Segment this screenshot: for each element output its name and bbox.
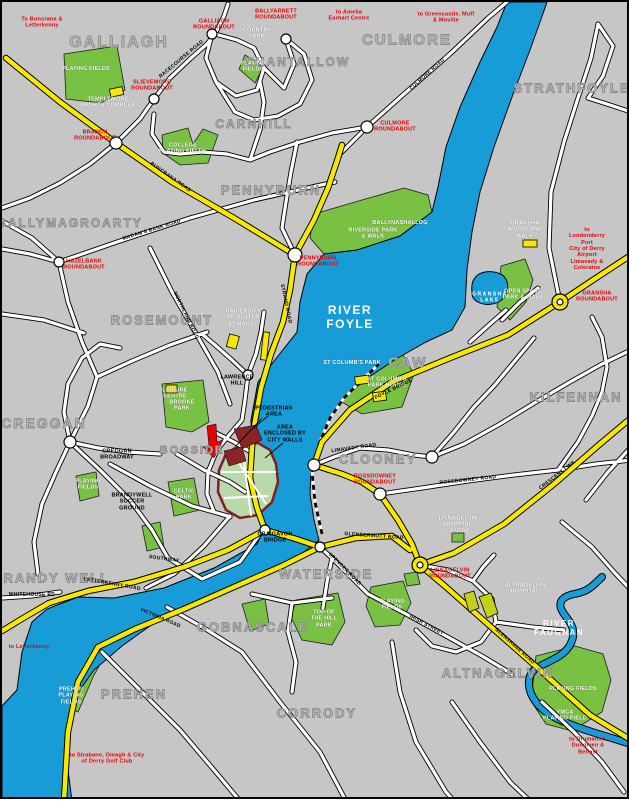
park-label-top-of-the-hill-park: TOP OF THE HILL PARK — [311, 610, 337, 629]
poi-label-gransha-woodland-walk: GRANSHA WOODLAND WALK — [508, 221, 543, 240]
poi-label-university-of-ulster: UNIVERSITY OF ULSTER AT MAGEE — [225, 309, 260, 328]
road-label-foyle-bridge: FOYLE BRIDGE — [374, 378, 413, 401]
park-label-waterside-playing-fields: PLAYING FIELDS — [379, 599, 404, 612]
direction-label-strabane: to Strabane, Omagh & City of Derry Golf … — [70, 753, 145, 766]
park-label-kilfennan-playing-fields: PLAYING FIELDS — [549, 686, 597, 692]
park-label-celtic-park: CELTIC PARK — [174, 489, 195, 502]
district-culmore: CULMORE — [362, 33, 452, 48]
direction-label-greencastle: to Greencastle, Muff & Moville — [418, 12, 475, 25]
road-label-madams-bank-road: MADAM'S BANK ROAD — [122, 219, 182, 242]
district-creggan: CREGGAN — [1, 416, 87, 430]
district-galliagh: GALLIAGH — [69, 35, 169, 51]
park-label-brooke-park: BROOKE PARK — [169, 400, 194, 413]
roundabout-label-galliagh: GALLIAGH ROUNDABOUT — [193, 19, 235, 32]
note-label-city-walls: AREA ENCLOSED BY CITY WALLS — [264, 425, 306, 444]
direction-label-londonderry-port: to Londonderry Port City of Derry Airpor… — [567, 227, 607, 271]
road-label-buncrana-road: BUNCRANA ROAD — [148, 162, 191, 195]
road-label-spencer-road: SPENCER ROAD — [326, 552, 361, 587]
district-clooney: CLOONEY — [339, 453, 417, 466]
roundabout-label-rossdowney: ROSSDOWNEY ROUNDABOUT — [354, 474, 396, 487]
district-altnagelvin: ALTNAGELVIN — [442, 667, 555, 680]
district-caw: CAW — [389, 355, 428, 369]
map: GALLIAGHSHANTALLOWCULMORESTRATHFOYLECARN… — [0, 0, 629, 799]
district-prehen: PREHEN — [101, 688, 167, 701]
direction-label-drumahoe: to Drumahoe, Dungiven & Belfast — [569, 737, 608, 756]
park-label-college-playing-fields: COLLEGE PLAYING FIELDS — [159, 143, 207, 156]
district-waterside: WATERSIDE — [279, 568, 373, 581]
road-label-glendermott-road: GLENDERMOTT ROAD — [344, 532, 404, 542]
park-label-ballyarnett-playing-fields: PLAYING FIELDS — [240, 61, 265, 74]
poi-label-lawrence-hill: LAWRENCE HILL — [220, 375, 253, 388]
park-label-prehen-playing-fields: PREHEN PLAYING FIELDS — [58, 687, 83, 706]
district-rosemount: ROSEMOUNT — [111, 314, 214, 327]
roundabout-label-gransha: GRANSHA ROUNDABOUT — [576, 291, 618, 304]
district-strathfoyle: STRATHFOYLE — [513, 82, 629, 95]
water-label-river-foyle: RIVER FOYLE — [326, 304, 374, 332]
roundabout-label-pennyburn: PENNYBURN ROUNDABOUT — [297, 256, 339, 269]
district-shantallow: SHANTALLOW — [246, 56, 350, 68]
park-label-st-columbs-park: ST COLUMB'S PARK — [323, 360, 381, 366]
poi-label-lisnagelvin-shopping-centre: LISNAGELVIN SHOPPING CENTRE — [439, 516, 478, 535]
note-label-pedestrian-area: PEDESTRIAN AREA — [255, 406, 292, 419]
roundabout-label-lisnagelvin: LISNAGELVIN ROUNDABOUT — [429, 568, 471, 581]
road-label-limavady-road: LIMAVADY ROAD — [331, 443, 377, 455]
direction-label-buncrana: To Buncrana & Letterkenny — [21, 17, 62, 30]
poi-label-brandywell-soccer-ground: BRANDYWELL SOCCER GROUND — [111, 493, 152, 512]
poi-label-altnagelvin-hospital: ALTNAGELVIN HOSPITAL — [505, 583, 546, 596]
water-label-river-faughan: RIVER FAUGHAN — [534, 619, 584, 637]
district-bogside: BOGSIDE — [160, 446, 225, 457]
district-pennyburn: PENNYBURN — [221, 184, 321, 197]
district-ballymagroarty: BALLYMAGROARTY — [0, 217, 143, 229]
label-layer: GALLIAGHSHANTALLOWCULMORESTRATHFOYLECARN… — [2, 2, 627, 797]
poi-label-creggan-broadway: CREGGAN BROADWAY — [100, 449, 134, 462]
road-label-whitehouse-road: WHITEHOUSE RD — [9, 593, 55, 599]
district-gobnascale: GOBNASCALE — [197, 621, 309, 634]
roundabout-label-ballyarnett: BALLYARNETT ROUNDABOUT — [255, 9, 297, 22]
district-carnhill: CARNHILL — [215, 118, 292, 130]
roundabout-label-hazelbank: HAZELBANK ROUNDABOUT — [63, 259, 105, 272]
road-label-southway: SOUTHWAY — [148, 555, 179, 565]
poi-label-templemore-sports-complex: TEMPLEMORE SPORTS COMPLEX — [81, 97, 135, 110]
road-label-letterkenny-road: LETTERKENNY ROAD — [83, 577, 141, 593]
district-corrody: CORRODY — [277, 707, 357, 720]
roundabout-label-culmore: CULMORE ROUNDABOUT — [374, 121, 416, 134]
road-label-northland-road: NORTHLAND ROAD — [171, 291, 199, 340]
direction-label-amelia-earhart: to Amelia Earhart Centre — [328, 10, 369, 23]
roundabout-label-branch: BRANCH ROUNDABOUT — [74, 130, 116, 143]
road-label-racecourse-road: RACECOURSE ROAD — [159, 40, 206, 81]
road-label-rossdowney-road: ROSSDOWNEY ROAD — [439, 475, 496, 487]
park-label-riverside-park: RIVERSIDE PARK & WALK — [348, 228, 397, 241]
water-label-gransha-lake: GRANSHA LAKE — [472, 292, 508, 304]
district-kilfennan: KILFENNAN — [529, 391, 622, 404]
road-label-irish-street: IRISH STREET — [408, 615, 444, 638]
poi-label-craigavon-bridge: CRAIGAVON BRIDGE — [257, 532, 292, 545]
road-label-culmore-road: CULMORE ROAD — [409, 58, 446, 92]
road-label-strand-road: STRAND ROAD — [278, 284, 292, 325]
poi-label-leisure-centre: LEISURE CENTRE — [162, 388, 187, 401]
park-label-open-space-park-walk: OPEN SPACE PARK & WALK — [503, 289, 544, 302]
poi-label-st-columbs-park-house: ST COLUMB'S PARK HOUSE — [367, 377, 407, 390]
road-label-crescent-link: CRESCENT LINK — [539, 460, 578, 492]
park-label-ymca-playing-field: YMCA PLAYING FIELD — [543, 710, 587, 723]
park-label-creggan-playing-fields: PLAYING FIELDS — [75, 479, 100, 492]
park-label-country-park: COUNTRY PARK — [243, 28, 271, 41]
park-label-galliagh-playing-fields: PLAYING FIELDS — [62, 66, 110, 72]
park-label-ballynashallog: BALLYNASHALLOG — [372, 220, 427, 226]
road-label-glenshane-road: GLENSHANE ROAD — [493, 628, 535, 667]
roundabout-label-slievemore: SLIEVEMORE ROUNDABOUT — [131, 80, 173, 93]
direction-label-letterkenny: to Letterkenny — [9, 644, 50, 650]
district-brandy-well: BRANDY WELL — [0, 572, 110, 585]
road-label-victoria-road: VICTORIA ROAD — [139, 608, 181, 630]
